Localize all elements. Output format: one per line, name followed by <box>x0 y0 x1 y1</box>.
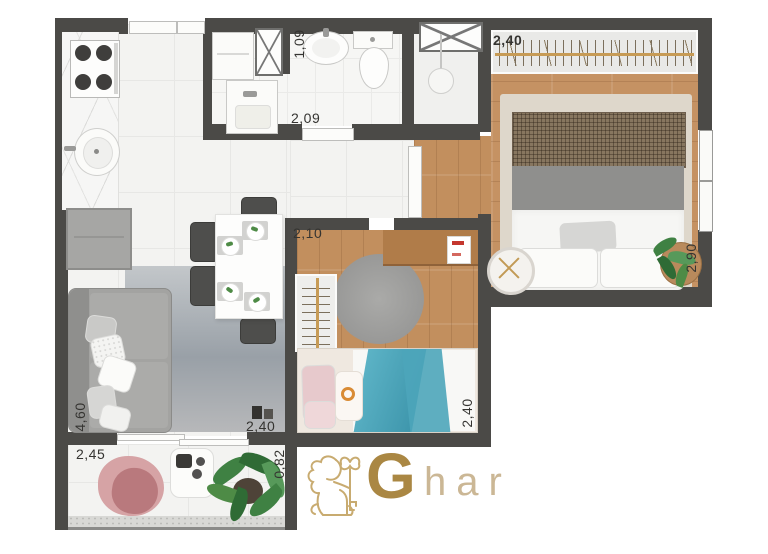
dim-bedroom1-depth: 2,90 <box>683 243 699 272</box>
dim-bedroom1-closet: 2,40 <box>493 32 522 48</box>
bath-sink <box>303 31 349 65</box>
wall-bedroom2-right <box>478 218 491 447</box>
bath-vent-shaft <box>419 22 483 52</box>
bath-sink-basin <box>312 38 340 58</box>
wall-bath-shower <box>402 24 414 124</box>
stove-panel <box>114 43 118 94</box>
burner <box>96 74 112 90</box>
wardrobe-rod <box>316 278 319 348</box>
washing-machine <box>212 32 254 80</box>
bedroom2-round-rug <box>334 254 424 344</box>
flush-button <box>370 37 375 42</box>
bed2-pattern-pillow <box>335 371 363 421</box>
wall-bath-bottom-right <box>352 124 480 140</box>
plate <box>221 237 240 256</box>
burner <box>75 45 91 61</box>
shower-cord <box>440 34 442 72</box>
balcony-sliding-pane-2 <box>179 439 249 446</box>
stove <box>70 40 120 98</box>
armchair-seat <box>109 465 161 517</box>
lion-logo-icon <box>306 450 370 520</box>
shower-head <box>428 68 454 94</box>
dim-service-width: 1,09 <box>291 29 307 58</box>
dim-living-depth: 4,60 <box>72 402 88 431</box>
floor-plan: 2,40 2,90 1,09 2,09 2,10 2,40 4,60 2,40 … <box>0 0 768 554</box>
bed1-nightstand <box>487 247 535 295</box>
bedroom2-desk <box>383 230 478 266</box>
balcony-sliding-pane-1 <box>117 434 185 441</box>
wall-living-bedroom2 <box>285 218 297 530</box>
bath-faucet <box>323 28 329 37</box>
bathroom-door <box>302 128 354 141</box>
laundry-tank <box>226 80 278 134</box>
service-shaft <box>255 28 283 76</box>
bed1-headboard <box>512 112 686 168</box>
wall-bedroom2-top-right <box>394 218 490 230</box>
dining-chair <box>240 318 276 344</box>
floor-corridor <box>290 140 420 218</box>
frame-detail <box>452 241 464 245</box>
closet-rod <box>495 53 694 56</box>
wall-balcony-left <box>55 432 117 445</box>
bedroom2-door <box>408 146 422 218</box>
tray-cup <box>192 469 202 479</box>
bed2-blanket-fold <box>402 349 451 432</box>
wall-kitchen-service <box>203 24 212 140</box>
tray-item <box>176 454 192 468</box>
balcony-edge <box>62 527 297 530</box>
dim-balcony-depth: 0,82 <box>271 449 287 478</box>
burner <box>75 74 91 90</box>
bed1-duvet <box>512 166 684 210</box>
wall-frame <box>447 236 471 264</box>
entrance-door-panel <box>177 21 205 34</box>
bedroom2-wardrobe <box>295 274 337 352</box>
tank-basin <box>235 105 271 129</box>
dim-living-width: 2,40 <box>246 418 275 434</box>
pillow-ring <box>341 387 355 401</box>
washer-line <box>217 53 249 55</box>
kitchen-faucet <box>64 146 76 151</box>
dim-bedroom2-depth: 2,40 <box>459 398 475 427</box>
kitchen-sink <box>74 128 120 176</box>
balcony-armchair <box>98 456 164 516</box>
tank-faucet <box>243 91 257 97</box>
cabinet-line <box>74 236 124 238</box>
burner <box>96 45 112 61</box>
dim-bathroom-width: 2,09 <box>291 110 320 126</box>
tray-cup <box>196 457 205 466</box>
bed2-pink-pillow-small <box>304 401 336 429</box>
bedroom1-window <box>699 130 713 232</box>
tv-cabinet <box>66 208 132 270</box>
window-divider <box>700 180 712 182</box>
brand-initial: G <box>366 444 416 508</box>
bedroom2-bed <box>297 348 478 433</box>
balcony-railing <box>62 516 297 527</box>
entrance-door <box>129 21 177 34</box>
sink-drain <box>94 149 99 154</box>
wall-bedroom1-right-top <box>698 18 712 130</box>
dim-bedroom2-width: 2,10 <box>293 225 322 241</box>
dim-balcony-width: 2,45 <box>76 446 105 462</box>
brand-rest: har <box>424 462 512 502</box>
frame-detail <box>452 253 461 256</box>
